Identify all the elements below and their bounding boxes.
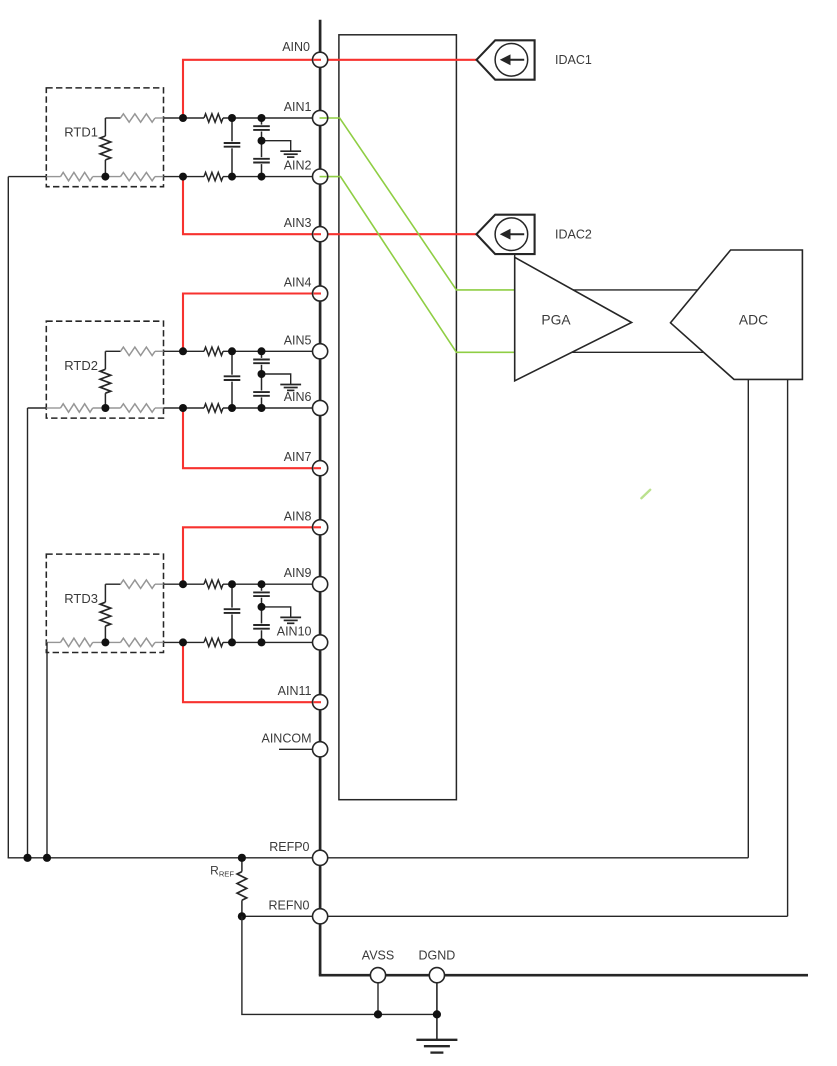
svg-text:RTD1: RTD1	[64, 125, 98, 140]
svg-text:AIN5: AIN5	[284, 333, 312, 347]
svg-text:AIN10: AIN10	[277, 624, 312, 638]
svg-text:ADC: ADC	[739, 312, 768, 327]
svg-text:AIN9: AIN9	[284, 566, 312, 580]
svg-text:IDAC1: IDAC1	[555, 53, 592, 67]
svg-text:RTD2: RTD2	[64, 358, 98, 373]
svg-text:AIN7: AIN7	[284, 450, 312, 464]
svg-text:AIN2: AIN2	[284, 159, 312, 173]
svg-text:PGA: PGA	[541, 312, 571, 327]
svg-text:IDAC2: IDAC2	[555, 228, 592, 242]
svg-text:AIN4: AIN4	[284, 276, 312, 290]
svg-text:REFP0: REFP0	[269, 840, 309, 854]
svg-text:RTD3: RTD3	[64, 591, 98, 606]
svg-text:AIN6: AIN6	[284, 390, 312, 404]
svg-text:AIN11: AIN11	[278, 684, 312, 698]
svg-text:DGND: DGND	[418, 949, 455, 963]
svg-text:AIN1: AIN1	[284, 100, 312, 114]
svg-text:AINCOM: AINCOM	[262, 731, 312, 745]
svg-text:REFN0: REFN0	[269, 898, 310, 912]
svg-text:AIN8: AIN8	[284, 509, 312, 523]
svg-text:AIN3: AIN3	[284, 216, 312, 230]
svg-text:AVSS: AVSS	[362, 949, 394, 963]
svg-text:AIN0: AIN0	[282, 40, 310, 54]
